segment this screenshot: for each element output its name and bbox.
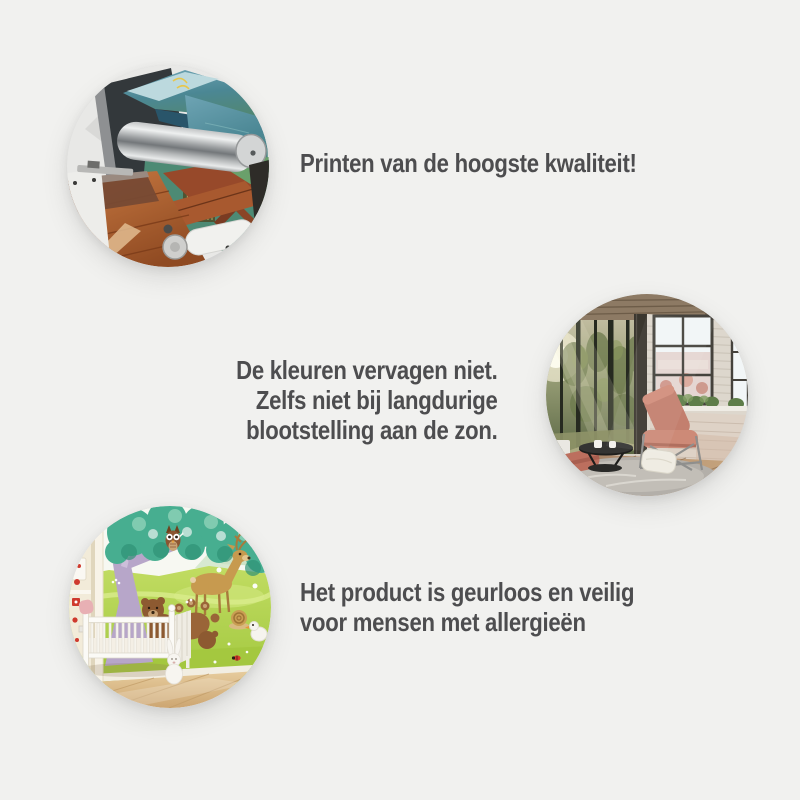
benefit-line: Het product is geurloos en veilig: [300, 577, 634, 607]
window-right: [732, 324, 748, 408]
photo-nursery-mural: [69, 506, 271, 708]
photo-printing-machine: [67, 65, 269, 267]
benefit-text-fade-resistant: De kleuren vervagen niet. Zelfs niet bij…: [237, 355, 498, 445]
benefit-text-odorless-safe: Het product is geurloos en veilig voor m…: [300, 577, 634, 637]
benefit-line: Printen van de hoogste kwaliteit!: [300, 148, 637, 178]
benefit-line: De kleuren vervagen niet.: [237, 355, 498, 385]
benefit-text-print-quality: Printen van de hoogste kwaliteit!: [300, 148, 637, 178]
benefit-line: blootstelling aan de zon.: [237, 415, 498, 445]
product-benefits-infographic: Printen van de hoogste kwaliteit!: [0, 0, 800, 800]
benefit-line: voor mensen met allergieën: [300, 607, 634, 637]
benefit-line: Zelfs niet bij langdurige: [237, 385, 498, 415]
nursery-photo-illustration: [69, 506, 271, 708]
photo-forest-mural-interior: [546, 294, 748, 496]
printer-photo-illustration: [67, 65, 269, 267]
interior-photo-illustration: [546, 294, 748, 496]
